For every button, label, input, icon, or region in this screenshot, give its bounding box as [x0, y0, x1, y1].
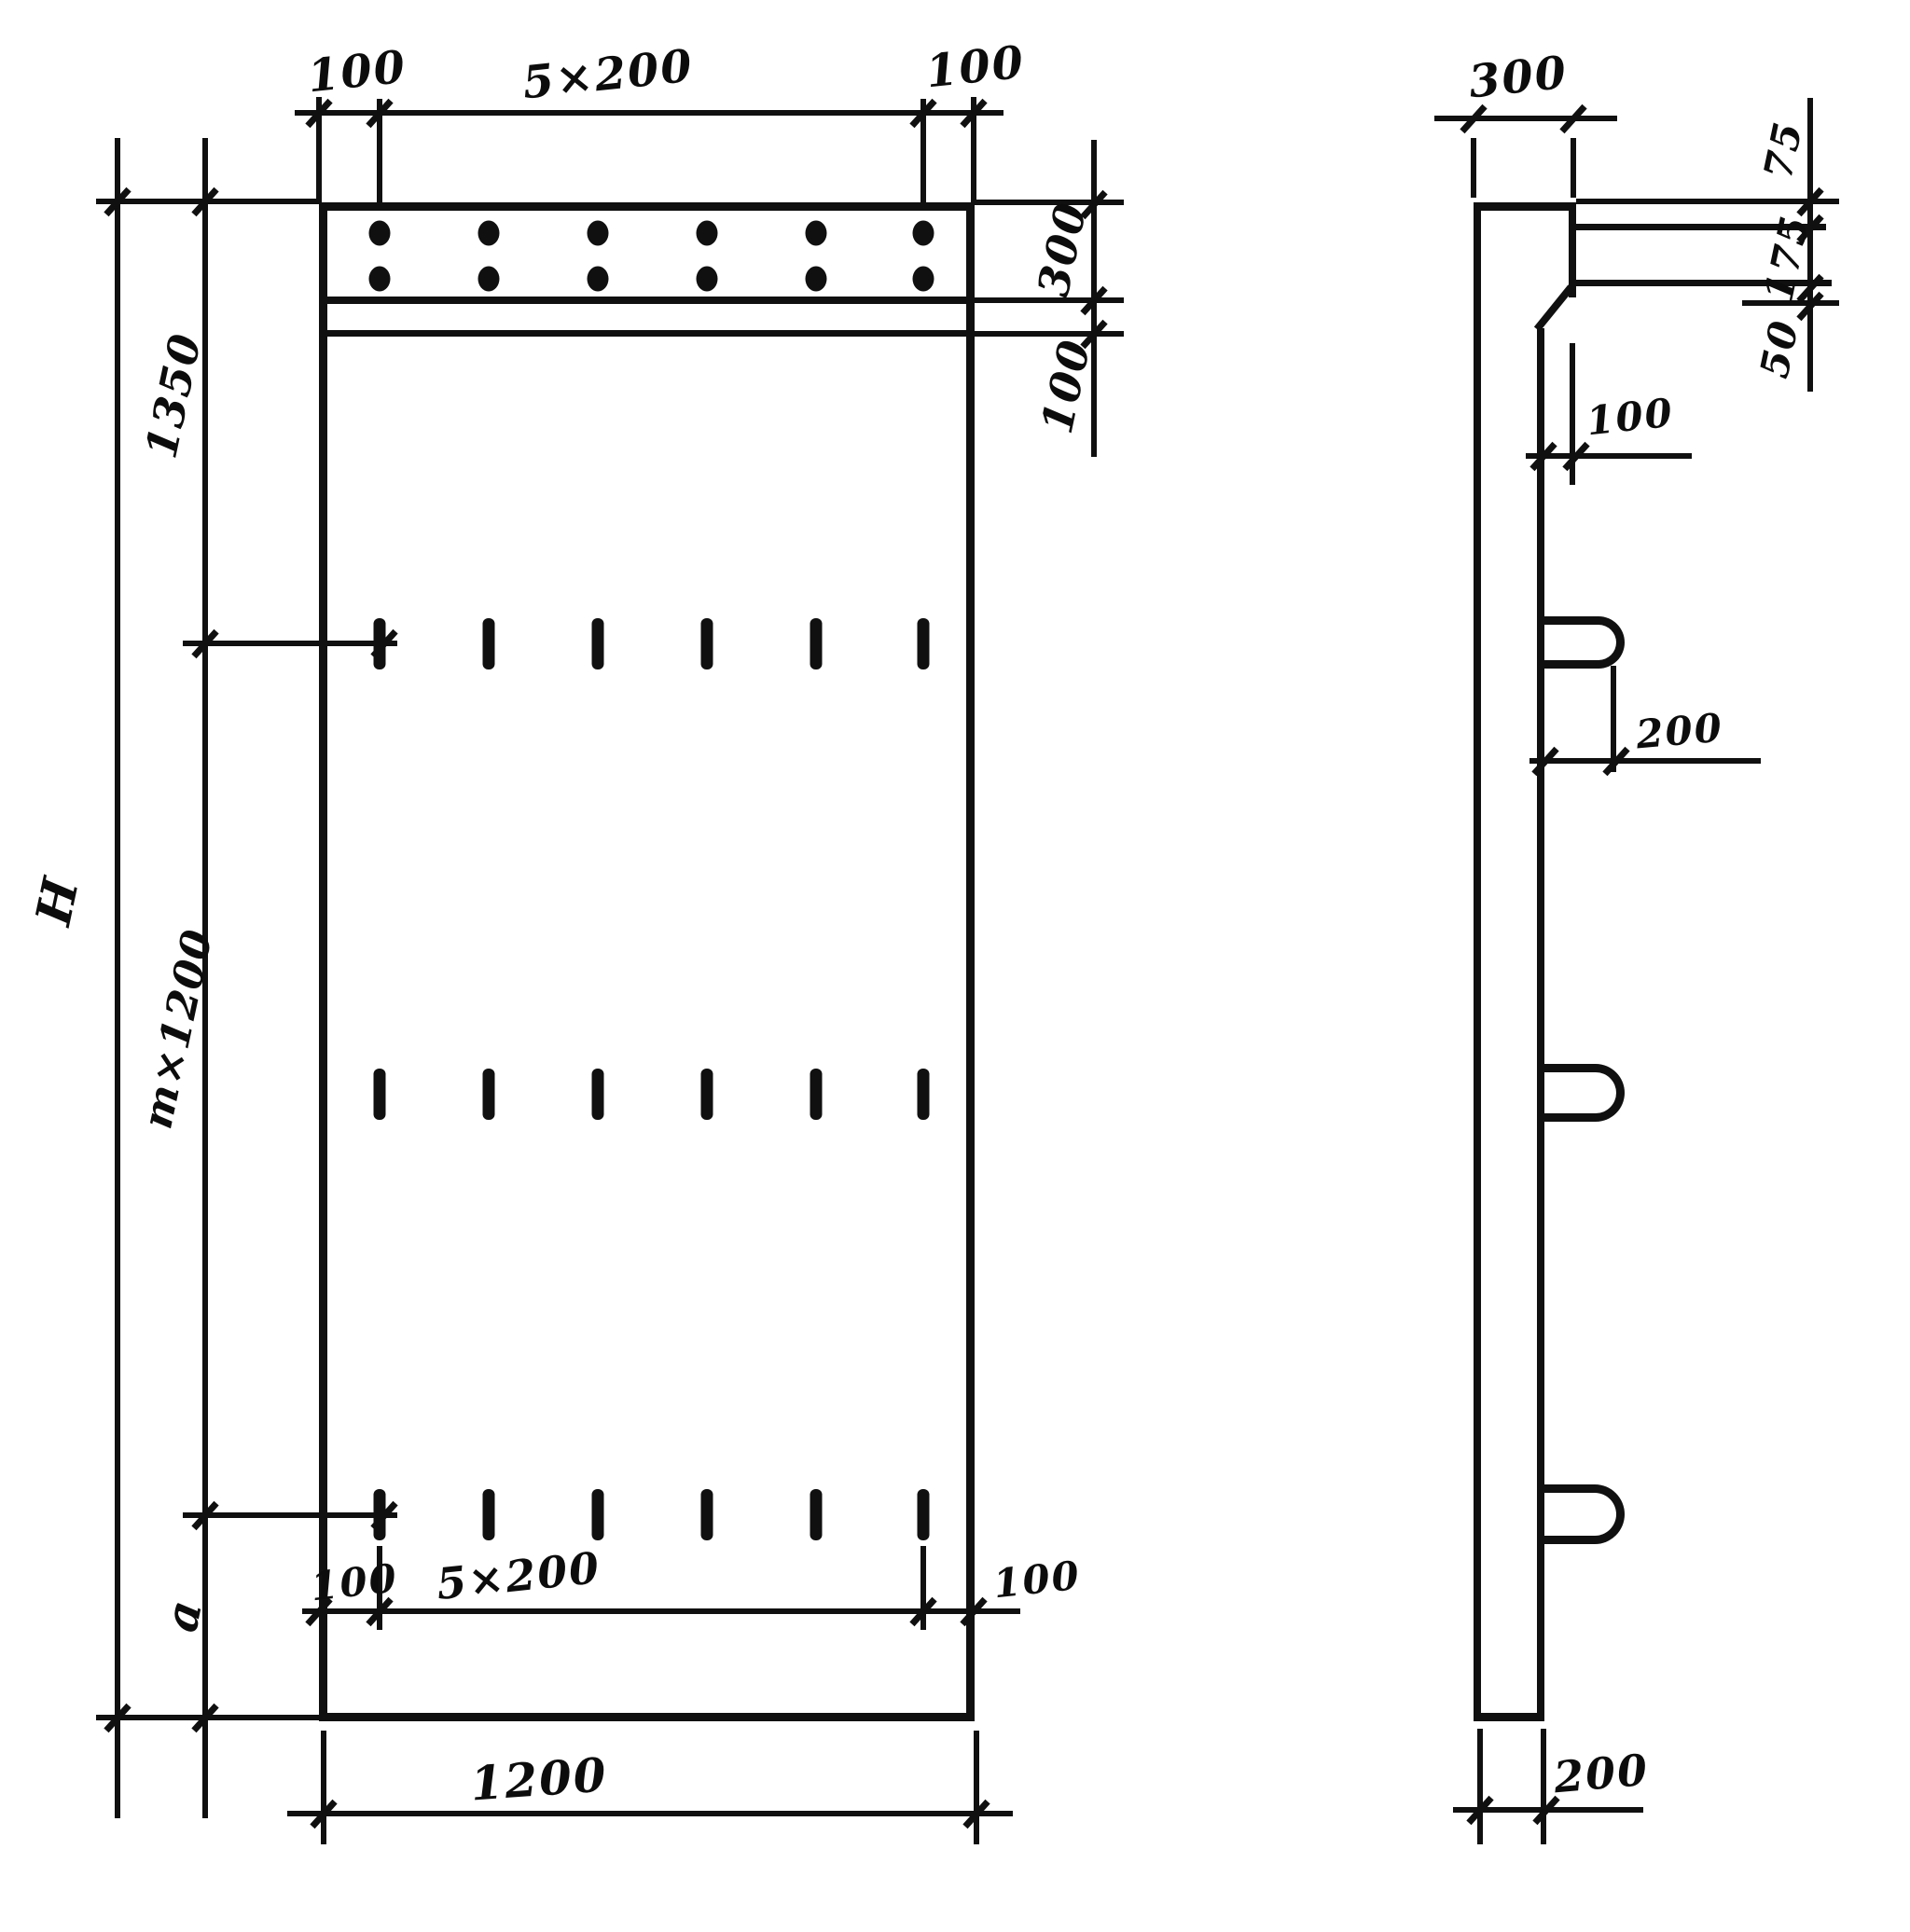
slot-dash-r2-c6	[918, 1069, 930, 1120]
sv-100-dim-line	[1526, 453, 1692, 459]
anchor-dot-r1-c6	[913, 221, 934, 246]
slot-dash-r3-c3	[592, 1489, 604, 1540]
anchor-dot-r2-c4	[697, 267, 718, 292]
anchor-dot-r2-c5	[806, 267, 827, 292]
sv-bottom-ext-left	[1477, 1729, 1483, 1844]
slot-dash-r1-c4	[701, 618, 713, 669]
fv-bottom-dim-line	[287, 1811, 1013, 1816]
fv-strip-line-upper	[322, 297, 972, 304]
slot-dash-r3-c6	[918, 1489, 930, 1540]
fv-strip-line-lower	[322, 330, 972, 337]
slot-dash-r2-c3	[592, 1069, 604, 1120]
sv-dim-100: 100	[1585, 390, 1676, 445]
slot-dash-r2-c1	[374, 1069, 386, 1120]
fv-dim-bottom-5x200: 5×200	[434, 1542, 602, 1609]
fv-dim-strip-300: 300	[1028, 197, 1097, 300]
lifting-loop-2	[1544, 1064, 1625, 1122]
lifting-loop-3	[1544, 1484, 1625, 1544]
fv-bottom-ext-left	[321, 1731, 326, 1844]
fv-dim-strip-100: 100	[1031, 334, 1100, 437]
anchor-dot-r1-c1	[369, 221, 391, 246]
anchor-dot-r1-c5	[806, 221, 827, 246]
sv-top-ext-right	[1571, 138, 1576, 198]
panel-technical-drawing: 1005×2001003001001350m×1200aH1005×200100…	[0, 0, 1910, 1932]
anchor-dot-r2-c6	[913, 267, 934, 292]
sv-dim-loop-200: 200	[1634, 705, 1725, 758]
sv-right-edge-upper	[1569, 202, 1576, 297]
sv-loop-dim-line	[1529, 758, 1761, 764]
fv-dim-bottom-1200: 1200	[469, 1746, 610, 1811]
sv-dim-75: 75	[1755, 117, 1812, 183]
fv-top-dim-line	[295, 110, 1003, 116]
slot-dash-r3-c2	[483, 1489, 495, 1540]
sv-top-ext-left	[1471, 138, 1476, 198]
fv-right-ext-mid	[975, 297, 1124, 303]
slot-dash-r2-c2	[483, 1069, 495, 1120]
sv-top-dim-line	[1434, 116, 1617, 121]
sv-bottom-edge	[1474, 1713, 1544, 1721]
fv-dim-top-right-100: 100	[923, 36, 1027, 99]
fv-outline-top	[319, 202, 975, 211]
slot-dash-r3-c4	[701, 1489, 713, 1540]
fv-conn-a-row3	[183, 1512, 397, 1518]
fv-dim-top-left-100: 100	[305, 41, 408, 103]
fv-dim-bottom-right-100: 100	[991, 1552, 1083, 1608]
fv-dim-bottom-left-100: 100	[309, 1555, 400, 1610]
slot-dash-r1-c2	[483, 618, 495, 669]
sv-right-edge-bevel	[1534, 284, 1574, 331]
fv-right-ext-low	[975, 331, 1124, 337]
slot-dash-r3-c1	[374, 1489, 386, 1540]
sv-left-edge	[1474, 202, 1481, 1721]
fv-outline-right	[966, 202, 975, 1721]
fv-dim-top-5x200: 5×200	[520, 40, 697, 110]
anchor-dot-r1-c3	[588, 221, 609, 246]
fv-conn-1350-row1	[183, 641, 397, 646]
slot-dash-r1-c1	[374, 618, 386, 669]
slot-dash-r2-c4	[701, 1069, 713, 1120]
slot-dash-r1-c5	[810, 618, 823, 669]
fv-bottom-inner-dim	[302, 1608, 1020, 1614]
sv-ext-top-level	[1576, 199, 1839, 204]
fv-dim-left-m-x-1200: m×1200	[133, 924, 222, 1133]
anchor-dot-r1-c2	[478, 221, 500, 246]
sv-dim-50: 50	[1751, 315, 1808, 381]
anchor-dot-r2-c3	[588, 267, 609, 292]
fv-dim-left-1350: 1350	[135, 328, 211, 462]
fv-outline-left	[319, 202, 327, 1721]
sv-right-edge-lower	[1537, 328, 1544, 1721]
fv-outline-bottom	[319, 1713, 975, 1721]
slot-dash-r1-c3	[592, 618, 604, 669]
anchor-dot-r1-c4	[697, 221, 718, 246]
sv-dim-top-300: 300	[1466, 47, 1570, 109]
anchor-dot-r2-c2	[478, 267, 500, 292]
sv-bottom-ext-right	[1541, 1729, 1546, 1844]
slot-dash-r1-c6	[918, 618, 930, 669]
lifting-loop-1	[1544, 616, 1625, 669]
fv-dim-left-H: H	[25, 872, 90, 931]
slot-dash-r3-c5	[810, 1489, 823, 1540]
slot-dash-r2-c5	[810, 1069, 823, 1120]
fv-left-dim-outer	[115, 138, 120, 1818]
anchor-dot-r2-c1	[369, 267, 391, 292]
sv-top-edge	[1474, 202, 1576, 211]
sv-dim-bottom-200: 200	[1552, 1745, 1651, 1803]
fv-bottom-ext-right	[974, 1731, 979, 1844]
